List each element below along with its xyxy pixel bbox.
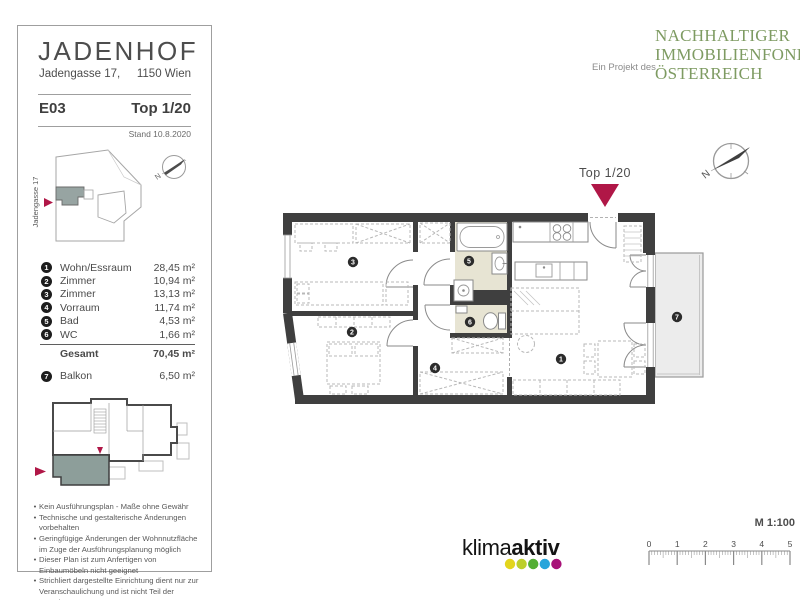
table-row: 1 Wohn/Essraum 28,45 m² bbox=[18, 261, 211, 274]
table-row: 6 WC 1,66 m² bbox=[18, 328, 211, 341]
unit-id: E03 bbox=[39, 100, 66, 117]
top-unit-label: Top 1/20 bbox=[579, 166, 631, 180]
total-divider bbox=[40, 344, 195, 345]
svg-text:7: 7 bbox=[675, 315, 679, 322]
site-compass-icon: N bbox=[153, 156, 186, 182]
project-address: Jadengasse 17, 1150 Wien bbox=[39, 68, 191, 80]
svg-text:5: 5 bbox=[467, 259, 471, 266]
fund-logo-line: NACHHALTIGER bbox=[655, 26, 800, 45]
window bbox=[290, 343, 298, 376]
scale-label: M 1:100 bbox=[700, 517, 795, 529]
table-row: 4 Vorraum 11,74 m² bbox=[18, 301, 211, 314]
balcony-door bbox=[630, 255, 655, 287]
bathtub bbox=[457, 223, 507, 251]
svg-text:0: 0 bbox=[647, 539, 652, 549]
room-number-badge: 5 bbox=[41, 316, 52, 327]
key-plan bbox=[31, 397, 201, 497]
toilet bbox=[484, 313, 506, 329]
address-city: 1150 Wien bbox=[137, 68, 191, 80]
room-number-badge: 7 bbox=[41, 371, 52, 382]
table-row: 3 Zimmer 13,13 m² bbox=[18, 288, 211, 301]
info-panel: JADENHOF Jadengasse 17, 1150 Wien E03 To… bbox=[17, 25, 212, 572]
highlighted-unit bbox=[53, 455, 109, 485]
svg-text:2: 2 bbox=[703, 539, 708, 549]
kitchen-counter bbox=[515, 262, 587, 280]
disclaimer-notes: •Kein Ausführungsplan - Maße ohne Gewähr… bbox=[31, 502, 205, 600]
note-item: •Kein Ausführungsplan - Maße ohne Gewähr bbox=[31, 502, 205, 513]
scale-bar: 0 1 2 3 4 5 bbox=[641, 538, 797, 574]
project-title: JADENHOF bbox=[38, 36, 198, 67]
svg-text:3: 3 bbox=[351, 260, 355, 267]
divider bbox=[38, 94, 191, 95]
washing-machine bbox=[454, 280, 473, 301]
balcony-row: 7 Balkon 6,50 m² bbox=[18, 369, 211, 382]
note-item: •Strichliert dargestellte Einrichtung di… bbox=[31, 576, 205, 600]
svg-text:4: 4 bbox=[433, 366, 437, 373]
fund-logo-line: IMMOBILIENFONDS bbox=[655, 45, 800, 64]
svg-text:2: 2 bbox=[350, 330, 354, 337]
unit-top-number: Top 1/20 bbox=[131, 100, 191, 117]
note-item: •Dieser Plan ist zum Anfertigen von Einb… bbox=[31, 555, 205, 576]
kitchen-counter bbox=[513, 222, 588, 242]
room-number-badge: 2 bbox=[41, 276, 52, 287]
svg-text:3: 3 bbox=[731, 539, 736, 549]
floorplan-page: JADENHOF Jadengasse 17, 1150 Wien E03 To… bbox=[0, 0, 800, 600]
svg-text:6: 6 bbox=[468, 320, 472, 327]
room-number-badge: 1 bbox=[41, 262, 52, 273]
table-row: 2 Zimmer 10,94 m² bbox=[18, 274, 211, 287]
svg-text:5: 5 bbox=[788, 539, 793, 549]
address-street: Jadengasse 17, bbox=[39, 68, 120, 80]
room-number-badge: 4 bbox=[41, 302, 52, 313]
site-plan: Jadengasse 17 N bbox=[26, 147, 206, 257]
svg-text:4: 4 bbox=[759, 539, 764, 549]
bath-sink bbox=[492, 253, 507, 274]
wc-sink bbox=[456, 306, 467, 313]
balcony-door bbox=[624, 323, 655, 367]
entrance-door bbox=[590, 218, 616, 249]
room-number-badge: 3 bbox=[41, 289, 52, 300]
divider bbox=[38, 126, 191, 127]
entrance-arrow-icon bbox=[591, 184, 619, 207]
location-arrow-icon bbox=[44, 198, 53, 207]
north-label: N bbox=[153, 171, 163, 181]
highlighted-building bbox=[56, 187, 84, 205]
project-of-label: Ein Projekt des bbox=[592, 62, 656, 73]
klimaaktiv-dots-icon bbox=[504, 558, 566, 570]
note-item: •Technische und gestalterische Änderunge… bbox=[31, 513, 205, 534]
room-area-table: 1 Wohn/Essraum 28,45 m² 2 Zimmer 10,94 m… bbox=[18, 261, 211, 383]
fund-logo: NACHHALTIGER IMMOBILIENFONDS ÖSTERREICH bbox=[655, 26, 800, 83]
plan-date: Stand 10.8.2020 bbox=[39, 129, 191, 139]
window bbox=[283, 235, 293, 278]
unit-row: E03 Top 1/20 bbox=[39, 100, 191, 117]
room-number-badge: 6 bbox=[41, 329, 52, 340]
svg-text:1: 1 bbox=[559, 357, 563, 364]
fund-logo-line: ÖSTERREICH bbox=[655, 64, 800, 83]
note-item: •Geringfügige Änderungen der Wohnnutzflä… bbox=[31, 534, 205, 555]
floorplan-drawing: Top 1/20 bbox=[270, 160, 710, 420]
table-row: 5 Bad 4,53 m² bbox=[18, 315, 211, 328]
svg-text:1: 1 bbox=[675, 539, 680, 549]
total-row: Gesamt 70,45 m² bbox=[18, 348, 211, 363]
street-label: Jadengasse 17 bbox=[31, 177, 40, 228]
unit-arrow-icon bbox=[35, 467, 46, 476]
